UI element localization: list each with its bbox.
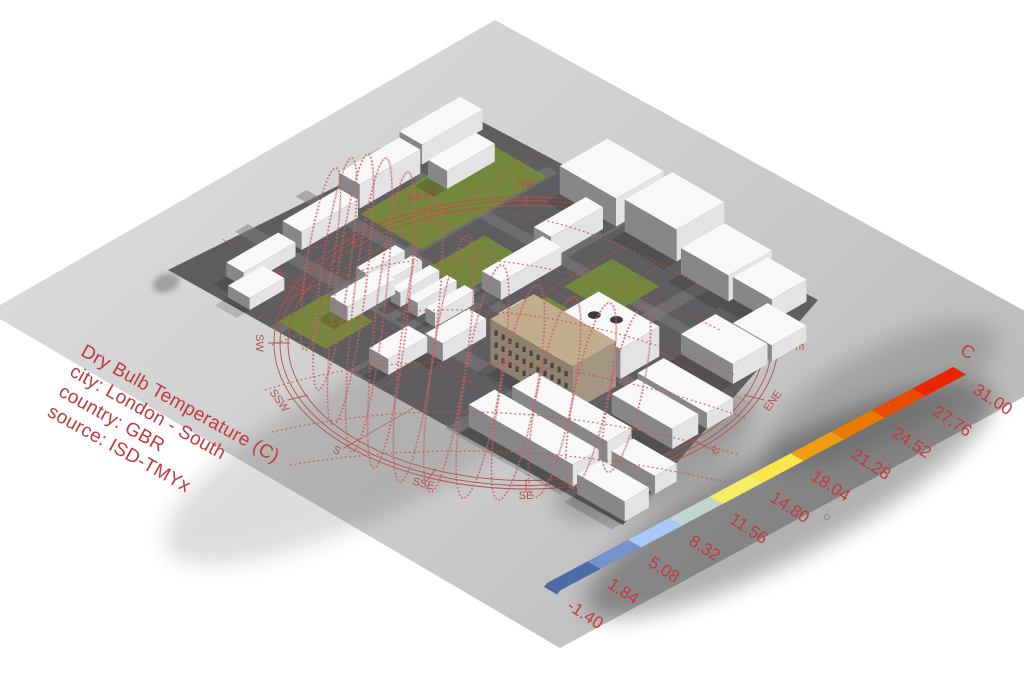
facade-window (564, 383, 567, 389)
facade-window (502, 334, 505, 340)
facade-window (516, 366, 519, 372)
facade-window (550, 363, 553, 369)
facade-window (529, 351, 532, 357)
facade-window (536, 355, 539, 361)
facade-window (516, 342, 519, 348)
facade-window (516, 354, 519, 360)
scene-svg: NNNENEENEEESESESSESSSWSWWSWWWNWNWNNW 31.… (0, 0, 1024, 683)
facade-window (495, 354, 498, 360)
facade-window (495, 330, 498, 336)
facade-window (495, 342, 498, 348)
facade-window (509, 362, 512, 368)
facade-window (564, 371, 567, 377)
facade-window (529, 363, 532, 369)
facade-window (523, 347, 526, 353)
compass-label-NW: NW (517, 178, 536, 190)
facade-window (557, 379, 560, 385)
facade-window (543, 371, 546, 377)
facade-window (523, 371, 526, 377)
viewport-3d-render: NNNENEENEEESESESSESSSWSWWSWWWNWNWNNW 31.… (0, 0, 1024, 683)
compass-label-SW: SW (253, 334, 265, 352)
compass-label-SE: SE (519, 490, 534, 502)
facade-window (523, 359, 526, 365)
facade-window (550, 375, 553, 381)
